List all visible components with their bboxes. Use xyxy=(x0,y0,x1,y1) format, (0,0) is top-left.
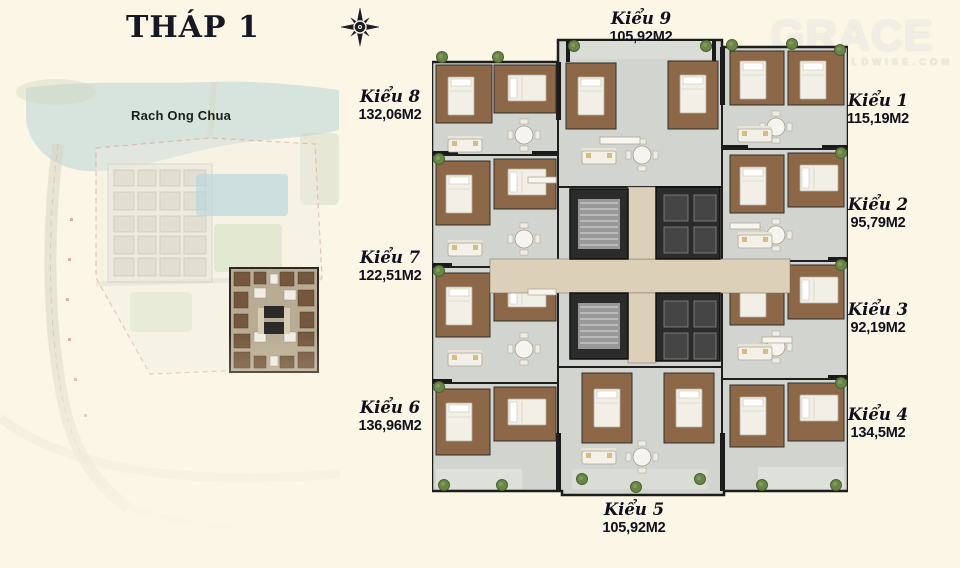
unit-label-kieu-9: Kiểu 9 105,92M2 xyxy=(581,10,701,46)
unit-name: Kiểu 2 xyxy=(818,196,938,214)
unit-label-kieu-7: Kiểu 7 122,51M2 xyxy=(330,249,450,285)
unit-label-kieu-2: Kiểu 2 95,79M2 xyxy=(818,196,938,232)
unit-name: Kiểu 9 xyxy=(581,10,701,28)
unit-name: Kiểu 8 xyxy=(330,88,450,106)
canal-name-label: Rach Ong Chua xyxy=(131,108,231,123)
unit-label-kieu-1: Kiểu 1 115,19M2 xyxy=(818,92,938,128)
unit-label-kieu-4: Kiểu 4 134,5M2 xyxy=(818,406,938,442)
unit-area: 105,92M2 xyxy=(574,519,694,537)
unit-area: 95,79M2 xyxy=(818,214,938,232)
unit-name: Kiểu 4 xyxy=(818,406,938,424)
unit-area: 115,19M2 xyxy=(818,110,938,128)
unit-label-kieu-3: Kiểu 3 92,19M2 xyxy=(818,301,938,337)
unit-label-kieu-6: Kiểu 6 136,96M2 xyxy=(330,399,450,435)
unit-area: 105,92M2 xyxy=(581,28,701,46)
tower-floor-plan xyxy=(432,37,848,497)
unit-name: Kiểu 1 xyxy=(818,92,938,110)
unit-name: Kiểu 6 xyxy=(330,399,450,417)
unit-label-kieu-5: Kiểu 5 105,92M2 xyxy=(574,501,694,537)
unit-name: Kiểu 5 xyxy=(574,501,694,519)
compass-rose-icon xyxy=(340,5,380,49)
unit-area: 132,06M2 xyxy=(330,106,450,124)
unit-area: 134,5M2 xyxy=(818,424,938,442)
unit-area: 92,19M2 xyxy=(818,319,938,337)
unit-area: 136,96M2 xyxy=(330,417,450,435)
highlighted-tower-mini-plan xyxy=(230,268,318,372)
site-plan-map xyxy=(0,78,345,568)
page-title: THÁP 1 xyxy=(126,10,260,45)
unit-name: Kiểu 3 xyxy=(818,301,938,319)
unit-label-kieu-8: Kiểu 8 132,06M2 xyxy=(330,88,450,124)
unit-name: Kiểu 7 xyxy=(330,249,450,267)
unit-area: 122,51M2 xyxy=(330,267,450,285)
